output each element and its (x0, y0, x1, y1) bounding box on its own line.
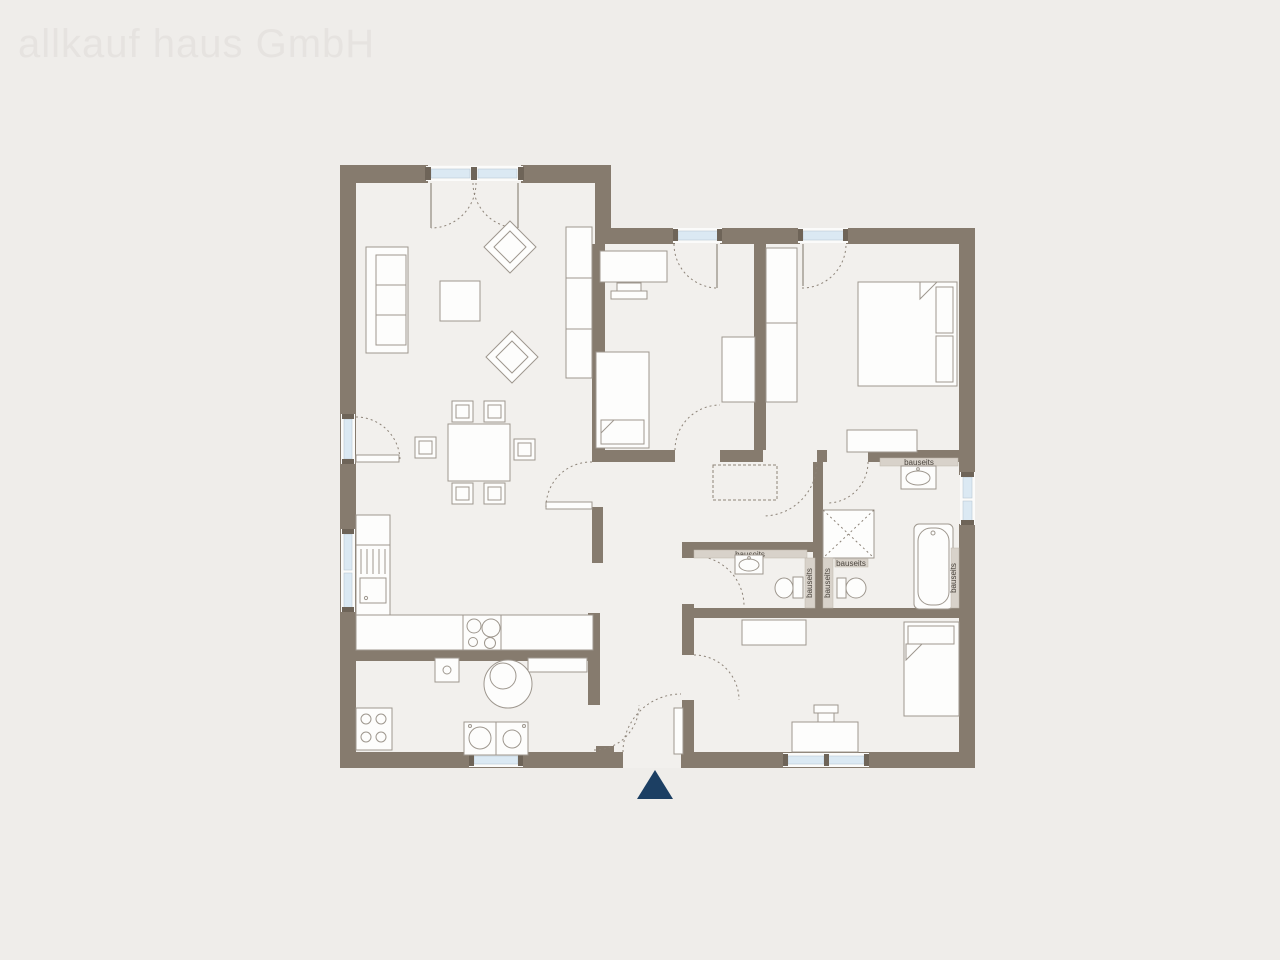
bathtub (914, 524, 953, 609)
toilet (837, 578, 866, 598)
shelf-unit (566, 227, 592, 378)
washbasin (901, 466, 936, 489)
dining-chair (415, 437, 436, 458)
kitchen-counter (356, 615, 593, 650)
entrance-arrow-icon (637, 770, 673, 799)
window-bedroom (798, 228, 848, 243)
desk-chair (814, 705, 838, 722)
double-bed (858, 282, 957, 386)
sofa (366, 247, 408, 353)
dining-chair (452, 401, 473, 422)
washing-machine (464, 722, 496, 755)
window-terrace-double-door (425, 166, 524, 181)
dining-chair (514, 439, 535, 460)
dining-table (448, 424, 510, 481)
wardrobe (766, 248, 797, 402)
bauseits-label: bauseits (823, 568, 832, 598)
single-bed (596, 352, 649, 448)
window-living-garden-door (341, 414, 355, 464)
toilet (775, 577, 803, 598)
dryer (496, 722, 528, 755)
shower (823, 510, 874, 558)
window-bottom-bedroom (783, 753, 869, 767)
freezer (356, 708, 392, 750)
desk (600, 251, 667, 282)
window-kid-room (673, 228, 722, 243)
dining-chair (484, 483, 505, 504)
bauseits-label: bauseits (949, 563, 958, 593)
floor-plan: bauseits bauseits bauseits bauseits b (0, 0, 1280, 960)
sideboard (847, 430, 917, 452)
window-kitchen (341, 529, 355, 612)
kitchen-sink (360, 578, 386, 603)
window-bathroom (960, 472, 975, 525)
desk (792, 722, 858, 752)
washbasin (735, 555, 763, 574)
coffee-table (440, 281, 480, 321)
dining-chair (484, 401, 505, 422)
single-bed (904, 622, 959, 716)
bauseits-label: bauseits (836, 559, 866, 568)
wardrobe (722, 337, 755, 402)
sideboard (742, 620, 806, 645)
utility-shelf (528, 658, 587, 672)
dining-chair (452, 483, 473, 504)
bauseits-label: bauseits (805, 568, 814, 598)
small-table (435, 658, 459, 682)
boiler (484, 660, 532, 708)
